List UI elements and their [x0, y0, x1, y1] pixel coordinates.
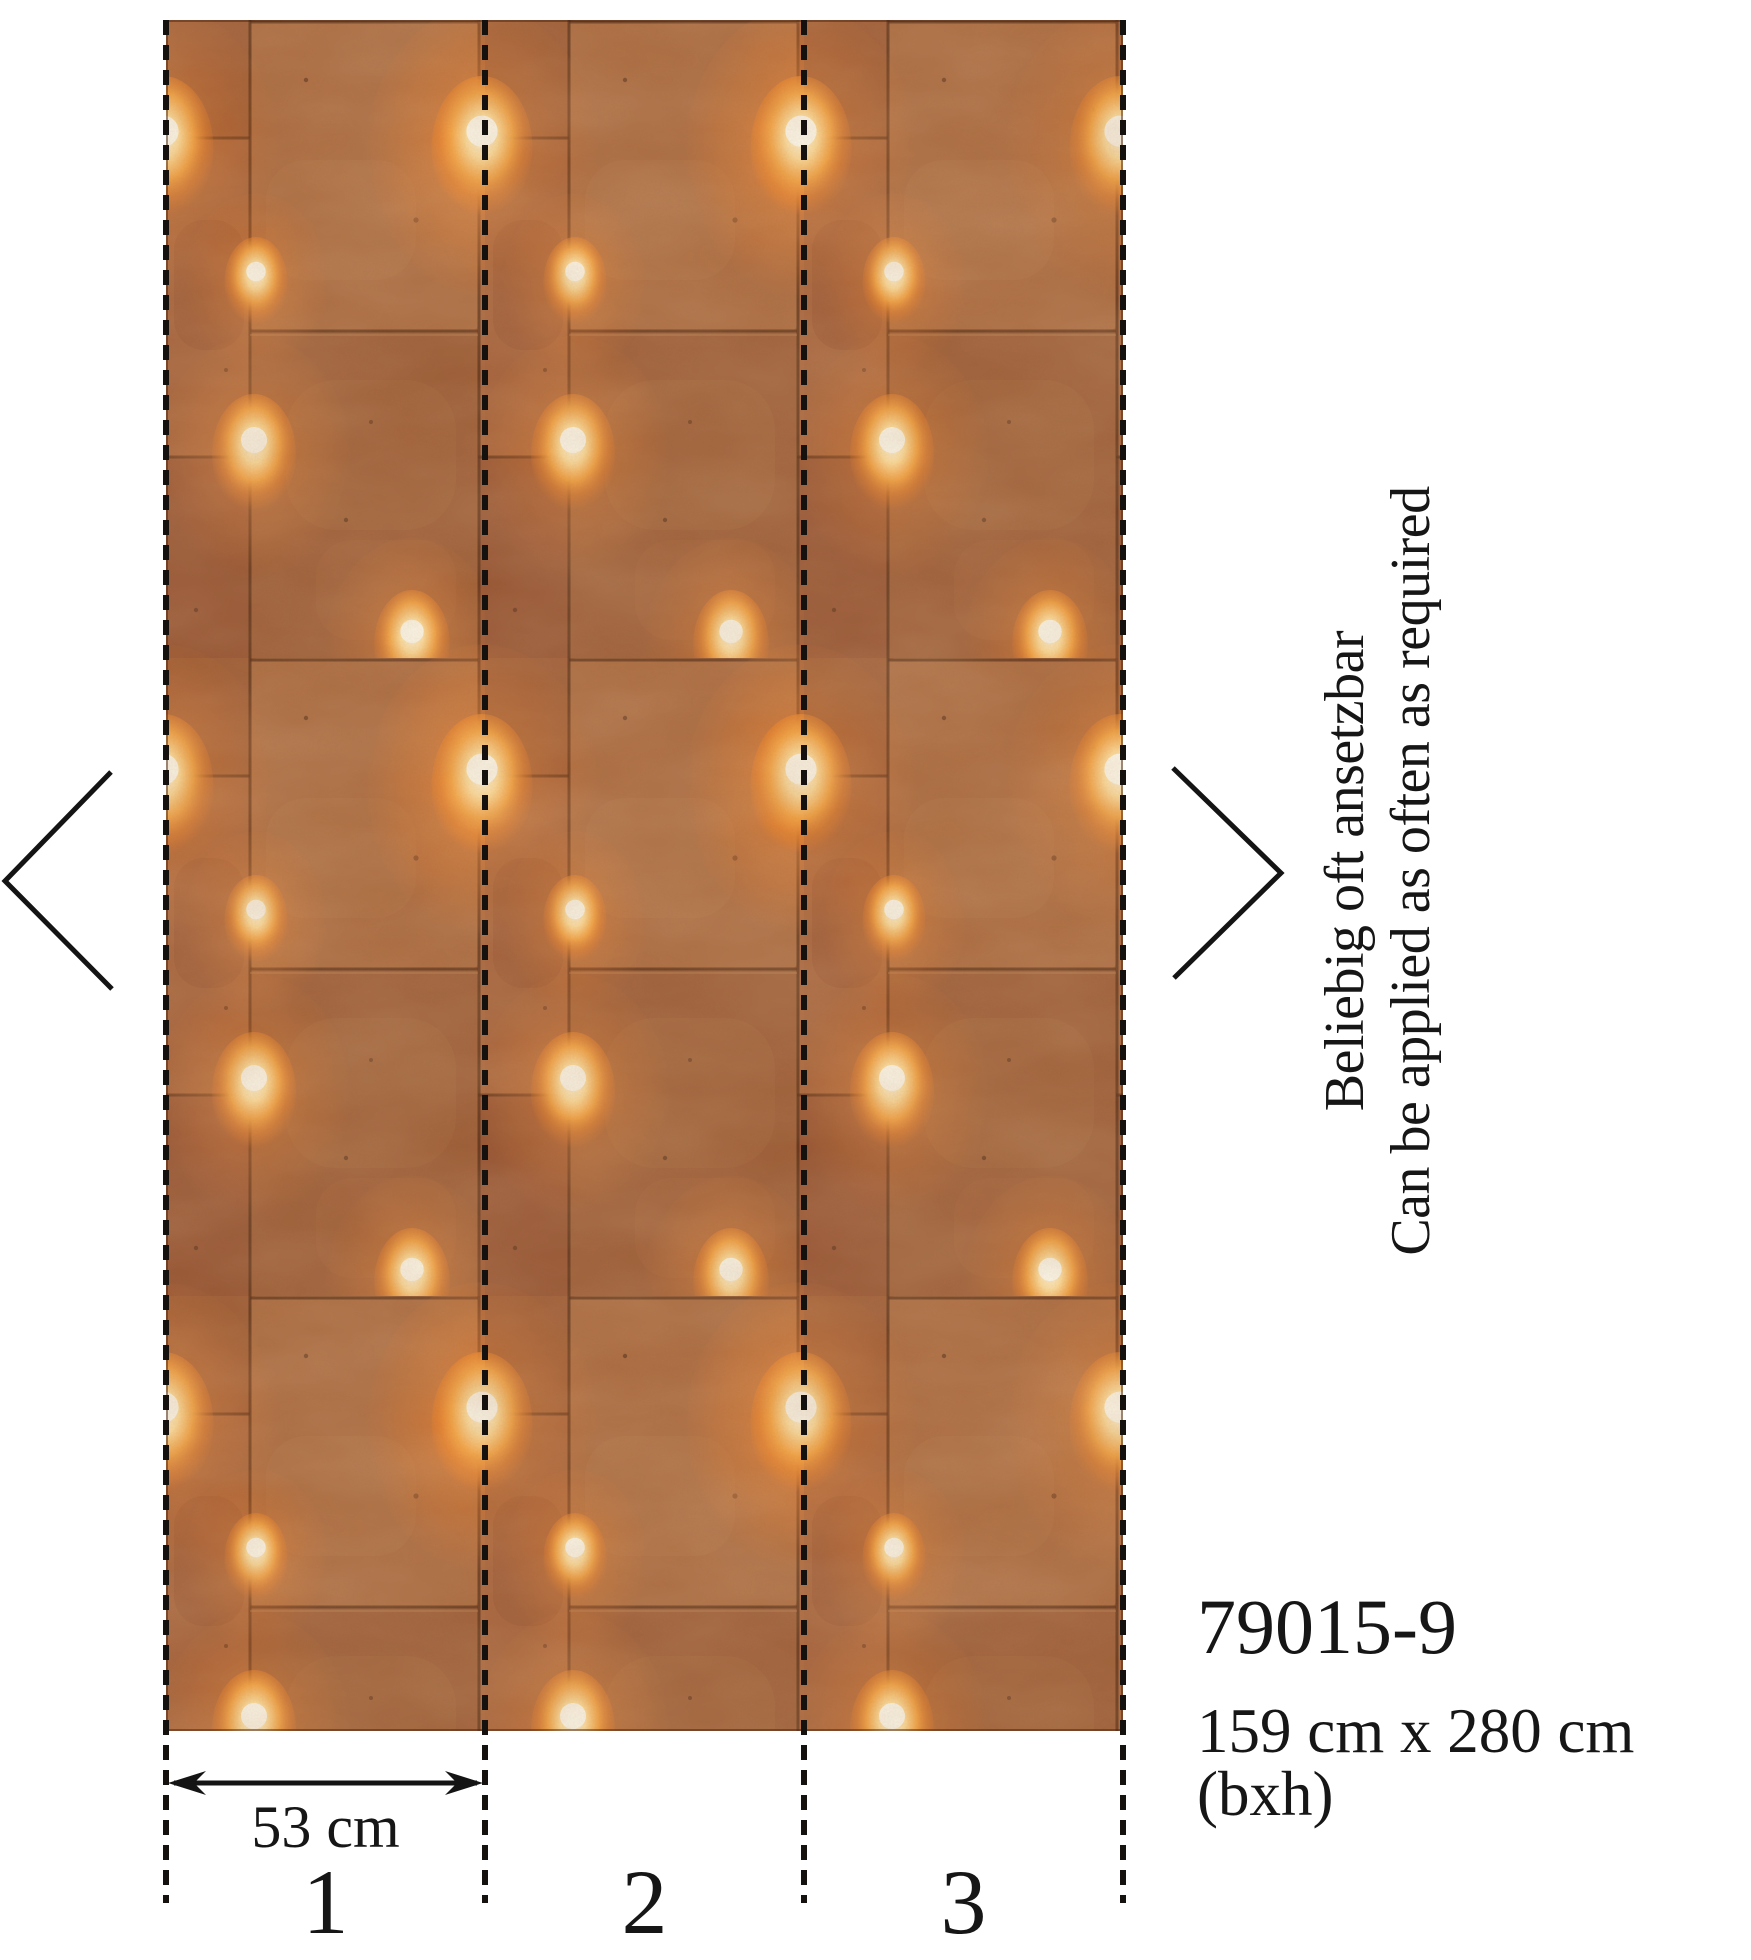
panel-number-1: 1 [166, 1856, 485, 1948]
panel-number-2: 2 [485, 1856, 804, 1948]
product-dimensions: 159 cm x 280 cm (bxh) [1197, 1700, 1751, 1826]
width-measure-arrow [166, 1769, 485, 1797]
repeat-note-en: Can be applied as often as required [1378, 486, 1444, 1255]
repeat-note: Beliebig oft ansetzbar Can be applied as… [1312, 486, 1444, 1255]
cut-line-4 [1120, 20, 1126, 1903]
wallpaper-texture [166, 20, 1123, 1731]
double-arrow-icon [166, 1769, 485, 1797]
panel-number-3: 3 [804, 1856, 1123, 1948]
product-code: 79015-9 [1197, 1588, 1457, 1666]
previous-button[interactable] [0, 764, 118, 994]
chevron-left-icon [0, 764, 118, 994]
repeat-note-de: Beliebig oft ansetzbar [1312, 486, 1378, 1255]
next-button[interactable] [1168, 760, 1286, 990]
wallpaper-spec-sheet: { "product": { "code": "79015-9", "size_… [0, 0, 1751, 1960]
chevron-right-icon [1168, 760, 1286, 990]
cut-line-3 [801, 20, 807, 1903]
cut-line-1 [163, 20, 169, 1903]
wallpaper-preview-image [166, 20, 1123, 1731]
cut-line-2 [482, 20, 488, 1903]
